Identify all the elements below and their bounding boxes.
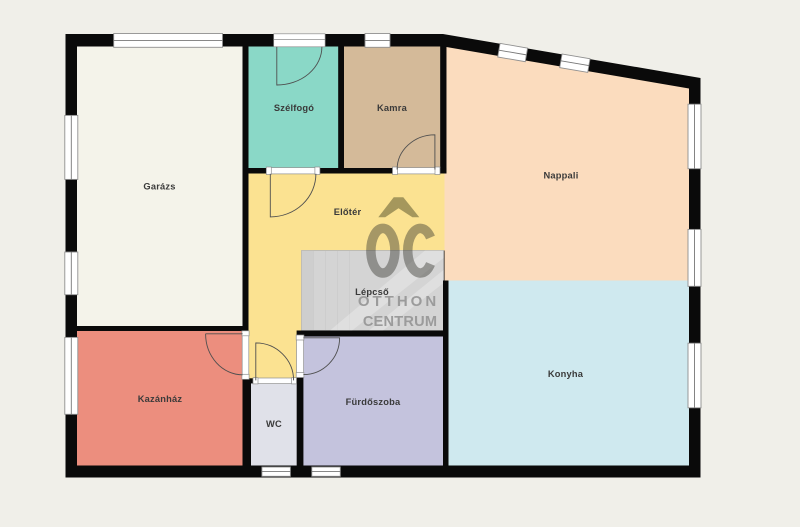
- svg-text:Nappali: Nappali: [544, 171, 579, 181]
- svg-text:Fürdőszoba: Fürdőszoba: [346, 397, 401, 407]
- svg-text:Kazánház: Kazánház: [138, 394, 183, 404]
- svg-text:Előtér: Előtér: [334, 207, 362, 217]
- svg-text:Konyha: Konyha: [548, 369, 584, 379]
- svg-text:Kamra: Kamra: [377, 103, 408, 113]
- svg-text:Lépcső: Lépcső: [355, 287, 389, 297]
- svg-text:CENTRUM: CENTRUM: [363, 314, 437, 330]
- svg-text:WC: WC: [266, 419, 282, 429]
- svg-text:Garázs: Garázs: [143, 182, 175, 192]
- svg-text:Szélfogó: Szélfogó: [274, 103, 314, 113]
